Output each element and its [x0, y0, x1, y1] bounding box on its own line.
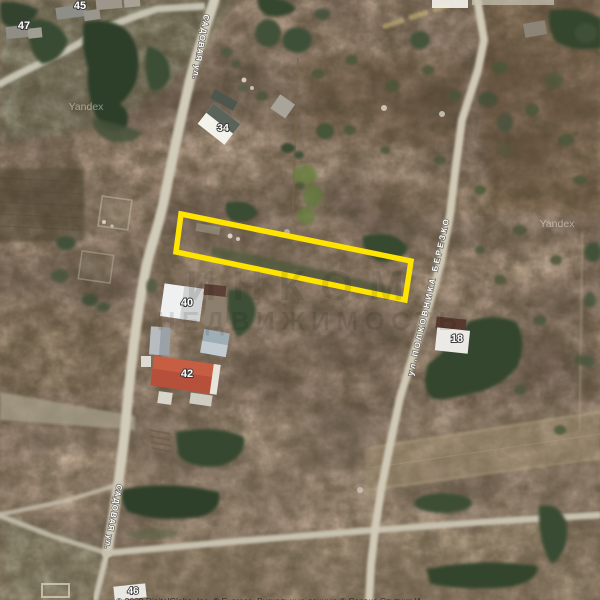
- svg-text:42: 42: [181, 368, 193, 380]
- svg-text:© 2009 DigitalGlobe, Inc. © Ex: © 2009 DigitalGlobe, Inc. © Express. Виз…: [116, 596, 420, 600]
- svg-text:47: 47: [18, 20, 30, 32]
- svg-text:Yandex: Yandex: [540, 218, 576, 230]
- svg-text:ИНКОМ: ИНКОМ: [186, 262, 420, 309]
- svg-text:18: 18: [451, 333, 463, 345]
- svg-text:40: 40: [181, 297, 193, 309]
- svg-text:34: 34: [217, 122, 229, 134]
- svg-text:45: 45: [74, 0, 86, 12]
- svg-text:Yandex: Yandex: [69, 101, 105, 113]
